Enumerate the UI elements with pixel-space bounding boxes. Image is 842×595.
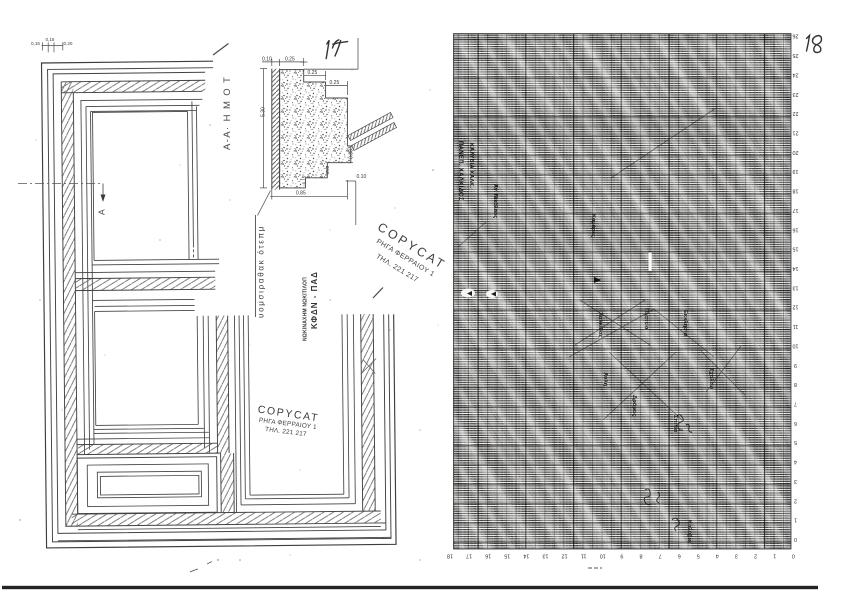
svg-text:15: 15	[504, 553, 510, 559]
svg-text:Αγ. Νικόλαος: Αγ. Νικόλαος	[492, 184, 498, 218]
svg-text:22: 22	[793, 110, 799, 116]
svg-text:ΚΑΛΥΒΙΑ ΧΑΛΚ.: ΚΑΛΥΒΙΑ ΧΑΛΚ.	[468, 143, 474, 188]
svg-text:7: 7	[794, 400, 797, 406]
svg-text:8: 8	[640, 553, 643, 559]
svg-text:Αυλή: Αυλή	[602, 372, 608, 387]
svg-text:0.25: 0.25	[308, 70, 318, 76]
svg-text:0.85: 0.85	[296, 191, 306, 197]
svg-text:0.10: 0.10	[357, 174, 367, 180]
svg-text:6: 6	[678, 553, 681, 559]
svg-text:0,15: 0,15	[31, 41, 40, 46]
svg-text:A-A· H M O T: A-A· H M O T	[222, 76, 233, 150]
svg-text:10: 10	[600, 553, 606, 559]
svg-text:0.05: 0.05	[325, 165, 330, 174]
svg-text:υομσιραθακ ότεπμ: υομσιραθακ ότεπμ	[257, 225, 266, 318]
svg-text:17: 17	[466, 553, 472, 559]
svg-text:14: 14	[523, 553, 529, 559]
svg-text:7: 7	[659, 553, 662, 559]
svg-text:25: 25	[793, 52, 799, 58]
svg-text:1: 1	[794, 517, 797, 523]
svg-text:0: 0	[792, 553, 795, 559]
svg-text:ΚΦΔΝ - ΠΑΔ: ΚΦΔΝ - ΠΑΔ	[310, 271, 319, 329]
svg-text:13: 13	[793, 284, 799, 290]
svg-text:Εκκλησία: Εκκλησία	[682, 310, 688, 337]
svg-text:5.30: 5.30	[261, 107, 267, 117]
svg-text:Καλύβια: Καλύβια	[686, 520, 692, 543]
svg-text:17: 17	[793, 207, 799, 213]
svg-text:15: 15	[793, 246, 799, 252]
svg-text:Σχολείο: Σχολείο	[708, 368, 714, 390]
svg-text:10: 10	[793, 342, 799, 348]
svg-text:3: 3	[794, 478, 797, 484]
svg-text:19: 19	[793, 168, 799, 174]
svg-text:16: 16	[485, 553, 491, 559]
svg-text:26: 26	[793, 33, 799, 39]
svg-text:1: 1	[773, 553, 776, 559]
svg-text:Χαλκίδας: Χαλκίδας	[597, 312, 603, 338]
svg-text:ΠΑΝΕΠ. ΧΑΛΚΙΔΟΣ: ΠΑΝΕΠ. ΧΑΛΚΙΔΟΣ	[457, 141, 463, 201]
svg-text:0.15: 0.15	[302, 175, 307, 184]
svg-text:13: 13	[543, 553, 549, 559]
svg-text:0.10: 0.10	[262, 56, 272, 62]
svg-text:9: 9	[620, 553, 623, 559]
svg-text:0.25: 0.25	[330, 80, 340, 86]
svg-text:2: 2	[794, 497, 797, 503]
svg-text:11: 11	[793, 323, 799, 329]
svg-text:12: 12	[562, 553, 568, 559]
svg-text:9: 9	[794, 362, 797, 368]
svg-text:0: 0	[794, 536, 797, 542]
svg-text:12: 12	[793, 304, 799, 310]
svg-text:Σπίτια: Σπίτια	[672, 415, 678, 433]
svg-text:0.25: 0.25	[285, 56, 295, 62]
svg-text:14: 14	[793, 265, 799, 271]
svg-text:18: 18	[447, 553, 453, 559]
svg-text:8: 8	[794, 381, 797, 387]
svg-text:3: 3	[735, 553, 738, 559]
svg-text:4: 4	[794, 459, 797, 465]
svg-text:A: A	[97, 209, 107, 215]
svg-text:21: 21	[793, 130, 799, 136]
svg-text:2: 2	[754, 553, 757, 559]
svg-text:5: 5	[697, 553, 700, 559]
svg-text:24: 24	[793, 71, 799, 77]
svg-text:11: 11	[581, 553, 587, 559]
svg-text:0,15: 0,15	[46, 37, 55, 42]
svg-text:Δρόμος: Δρόμος	[631, 395, 637, 416]
svg-text:4: 4	[716, 553, 719, 559]
svg-text:0,20: 0,20	[64, 41, 73, 46]
svg-text:Καμάρες: Καμάρες	[590, 214, 596, 237]
svg-text:5: 5	[794, 439, 797, 445]
svg-text:6: 6	[794, 420, 797, 426]
svg-text:0.30: 0.30	[349, 149, 355, 159]
svg-text:16: 16	[793, 226, 799, 232]
svg-text:23: 23	[793, 91, 799, 97]
svg-text:20: 20	[793, 149, 799, 155]
svg-text:Πλατεία: Πλατεία	[643, 308, 649, 330]
svg-text:ΝΩΚΙΝΑΧΗΜ ΝΩΚΙΤΙΛΟΠ: ΝΩΚΙΝΑΧΗΜ ΝΩΚΙΤΙΛΟΠ	[303, 277, 309, 341]
svg-text:18: 18	[793, 188, 799, 194]
